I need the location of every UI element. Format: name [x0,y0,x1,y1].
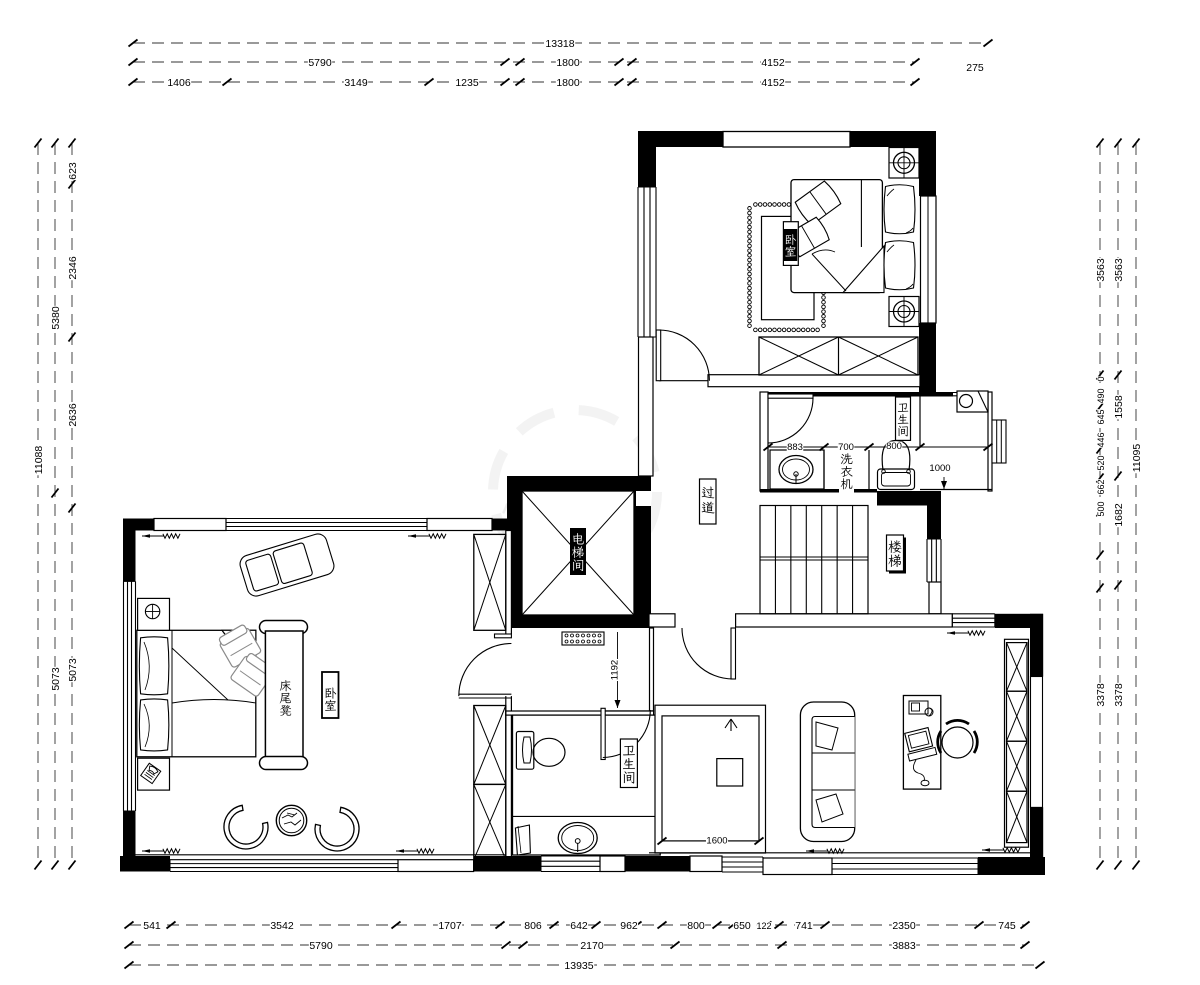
svg-text:645: 645 [1096,409,1106,424]
svg-text:11088: 11088 [33,446,45,475]
svg-text:1800: 1800 [556,77,580,89]
svg-text:11095: 11095 [1131,444,1143,473]
svg-text:662: 662 [1096,479,1106,494]
svg-text:650: 650 [733,920,751,932]
svg-text:5073: 5073 [50,667,62,691]
svg-text:2636: 2636 [67,403,79,427]
svg-text:1600: 1600 [706,836,727,847]
svg-text:3378: 3378 [1113,683,1125,707]
svg-text:5790: 5790 [308,57,332,69]
svg-text:800: 800 [886,441,902,452]
svg-text:500: 500 [1096,501,1106,516]
svg-text:883: 883 [787,442,803,453]
svg-text:1800: 1800 [556,57,580,69]
svg-text:3149: 3149 [344,77,368,89]
svg-text:5380: 5380 [50,306,62,330]
svg-text:3563: 3563 [1113,258,1125,282]
svg-text:623: 623 [67,162,79,180]
svg-text:2350: 2350 [892,920,916,932]
svg-text:1707: 1707 [438,920,462,932]
svg-text:700: 700 [838,442,854,453]
svg-text:962: 962 [620,920,638,932]
svg-text:642: 642 [570,920,588,932]
svg-text:541: 541 [143,920,161,932]
svg-text:3883: 3883 [892,940,916,952]
svg-text:1000: 1000 [929,463,950,474]
svg-text:2170: 2170 [580,940,604,952]
svg-text:446: 446 [1096,432,1106,447]
svg-text:1235: 1235 [455,77,479,89]
svg-text:0: 0 [1096,376,1106,381]
svg-text:800: 800 [687,920,705,932]
svg-text:122: 122 [756,921,771,931]
svg-text:4152: 4152 [761,77,785,89]
svg-text:3542: 3542 [270,920,294,932]
svg-text:13935: 13935 [564,960,593,972]
svg-text:1406: 1406 [167,77,191,89]
svg-text:13318: 13318 [545,38,574,50]
svg-text:5790: 5790 [309,940,333,952]
svg-text:2346: 2346 [67,256,79,280]
svg-text:275: 275 [966,62,984,74]
svg-text:3563: 3563 [1095,258,1107,282]
svg-text:5073: 5073 [67,658,79,682]
svg-text:520: 520 [1096,455,1106,470]
svg-text:1682: 1682 [1113,503,1125,527]
svg-text:806: 806 [524,920,542,932]
svg-text:1192: 1192 [610,660,621,680]
svg-text:490: 490 [1096,388,1106,403]
svg-text:3378: 3378 [1095,683,1107,707]
svg-text:4152: 4152 [761,57,785,69]
svg-text:1558: 1558 [1113,395,1125,419]
svg-text:745: 745 [998,920,1016,932]
svg-text:741: 741 [795,920,813,932]
